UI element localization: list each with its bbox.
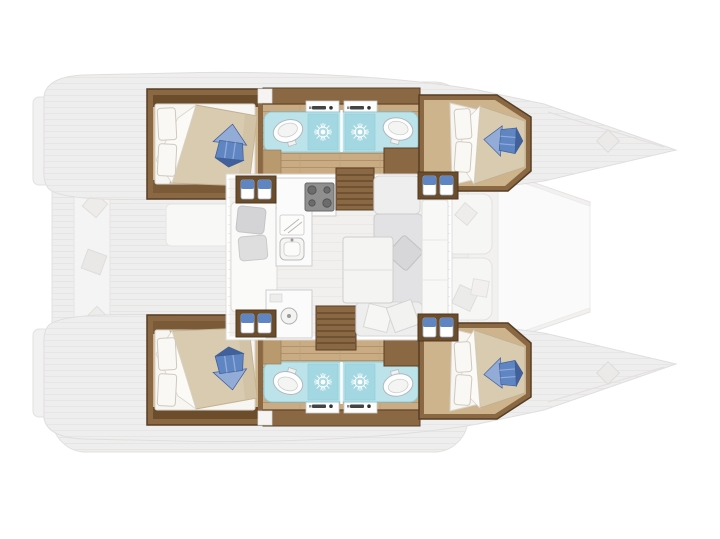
locker-aft-port bbox=[236, 176, 276, 203]
locker-fwd-starboard bbox=[418, 314, 458, 341]
locker-aft-starboard bbox=[236, 310, 276, 337]
sunpad-pillow bbox=[471, 279, 490, 298]
stairs-port bbox=[336, 168, 374, 210]
floor-plan-canvas bbox=[0, 0, 720, 539]
cockpit-table bbox=[166, 204, 230, 246]
gray-pillow bbox=[238, 235, 268, 261]
forward-sideboard bbox=[422, 200, 448, 318]
catamaran-floor-plan bbox=[0, 0, 720, 539]
galley-sink bbox=[280, 238, 304, 260]
locker-fwd-port bbox=[418, 172, 458, 199]
gray-pillow bbox=[236, 206, 267, 235]
sofa-chaise bbox=[374, 176, 420, 214]
stairs-starboard bbox=[316, 306, 356, 350]
stove bbox=[305, 183, 334, 211]
foredeck-sunpad bbox=[446, 194, 492, 254]
